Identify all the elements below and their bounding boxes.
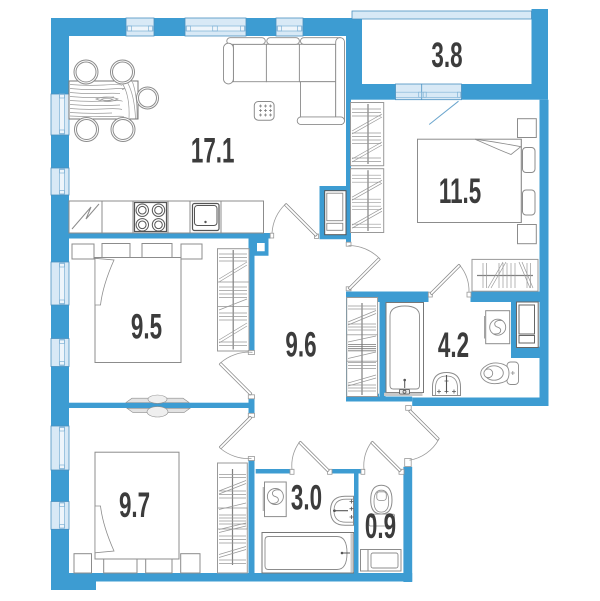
svg-text:9.5: 9.5 [131, 308, 162, 347]
svg-text:9.7: 9.7 [119, 486, 150, 525]
svg-text:9.6: 9.6 [285, 326, 316, 365]
svg-text:17.1: 17.1 [191, 132, 235, 171]
svg-text:3.8: 3.8 [431, 36, 462, 75]
svg-text:0.9: 0.9 [365, 507, 396, 546]
svg-text:3.0: 3.0 [291, 479, 322, 518]
svg-text:11.5: 11.5 [439, 172, 481, 211]
svg-text:4.2: 4.2 [438, 326, 469, 365]
